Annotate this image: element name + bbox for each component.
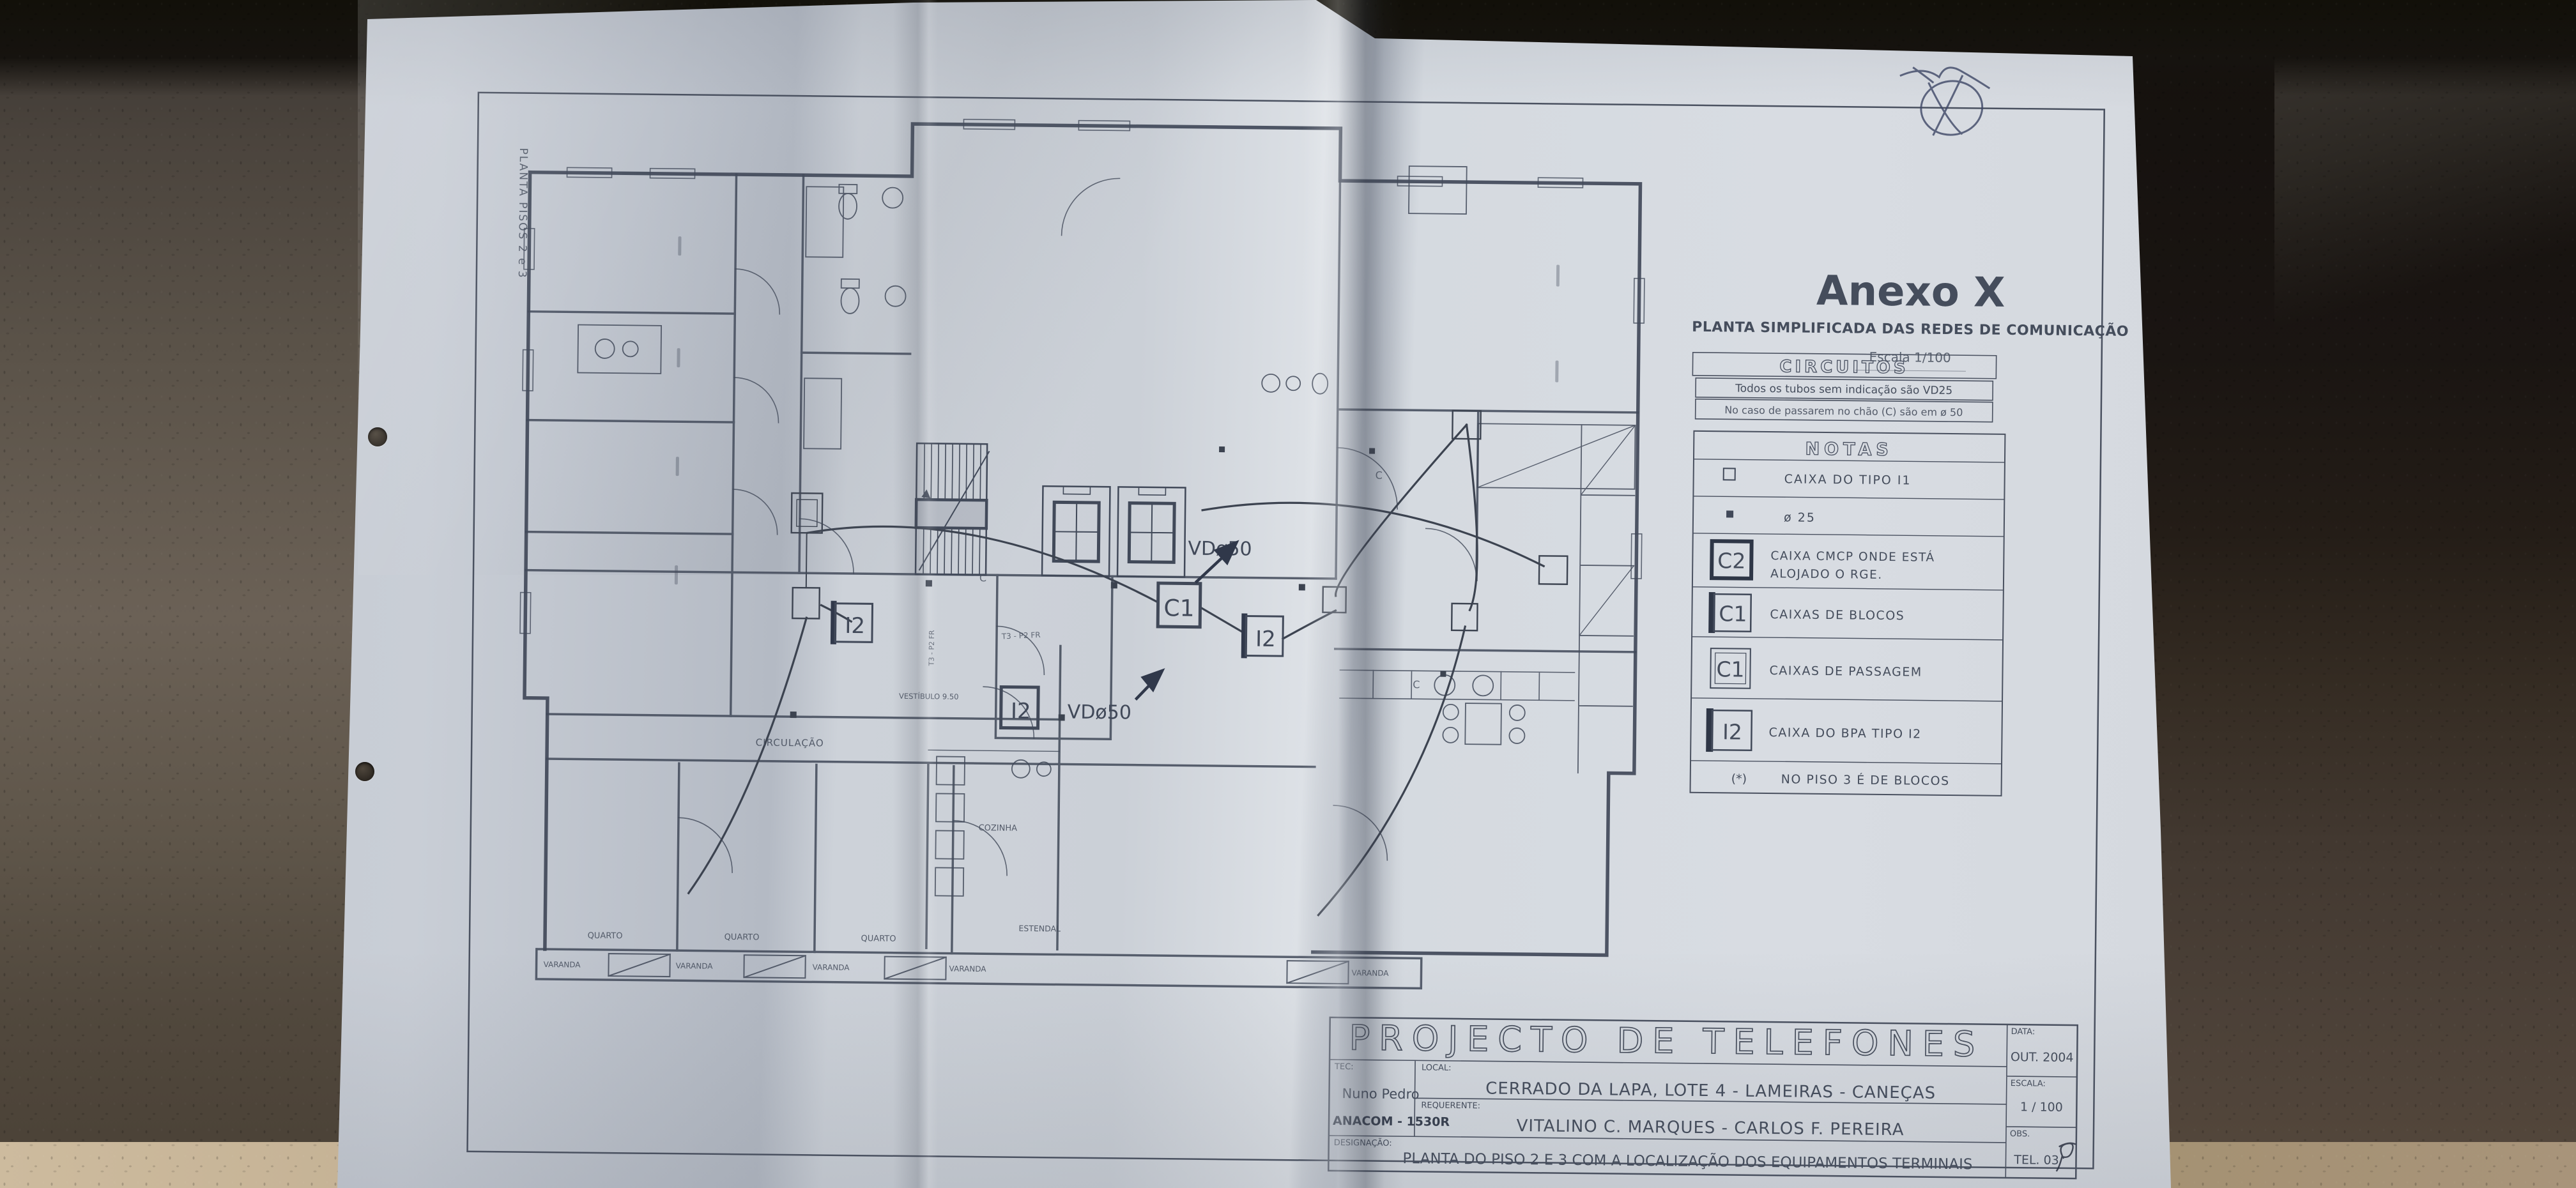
legend-c1a-code: C1 [1719, 601, 1747, 626]
tec-value: Nuno Pedro [1342, 1086, 1419, 1102]
requerente-value: VITALINO C. MARQUES - CARLOS F. PEREIRA [1516, 1116, 1904, 1139]
room-quarto-2: QUARTO [724, 933, 760, 943]
cable-mark-2: C [1413, 678, 1420, 690]
legend-c2-code: C2 [1717, 548, 1745, 573]
title-block: PROJECTO DE TELEFONES TEC: Nuno Pedro AN… [1328, 1017, 2077, 1178]
room-quarto-3: QUARTO [861, 934, 896, 944]
legend-row3-text1: CAIXA CMCP ONDE ESTÁ [1770, 549, 1935, 565]
legend-row4-text: CAIXAS DE BLOCOS [1770, 607, 1905, 623]
legend-footnote-symbol: (*) [1731, 772, 1747, 786]
sheet-subtitle: PLANTA SIMPLIFICADA DAS REDES DE COMUNIC… [1692, 319, 2129, 340]
designacao-value: PLANTA DO PISO 2 E 3 COM A LOCALIZAÇÃO D… [1402, 1149, 1972, 1173]
i2-bottom-label: I2 [1011, 699, 1031, 724]
sheet-title: Anexo X [1816, 268, 2005, 317]
room-labels: CIRCULAÇÃO VESTÍBULO 9.50 COZINHA ESTEND… [544, 687, 1392, 978]
staircase [916, 443, 989, 575]
obs-label: OBS. [2010, 1129, 2030, 1139]
internal-walls [521, 172, 1640, 991]
room-estendal: ESTENDAL [1018, 924, 1061, 934]
legend-symbol-open-square [1724, 468, 1735, 480]
handwritten-signature [1900, 67, 1989, 139]
room-vestibulo: VESTÍBULO 9.50 [899, 691, 959, 701]
legend-footnote-text: NO PISO 3 É DE BLOCOS [1781, 772, 1950, 788]
room-varanda-4: VARANDA [949, 964, 987, 974]
room-varanda-1: VARANDA [544, 960, 581, 970]
tec-stamp: ANACOM - 1530R [1333, 1114, 1450, 1129]
room-circulacao: CIRCULAÇÃO [756, 736, 824, 749]
data-value: OUT. 2004 [2011, 1050, 2074, 1065]
room-varanda-3: VARANDA [813, 963, 850, 972]
legend-row5-text: CAIXAS DE PASSAGEM [1769, 664, 1922, 680]
i2-left-label: I2 [845, 613, 865, 639]
punch-hole-bottom [355, 762, 374, 781]
circuitos-line1: Todos os tubos sem indicação são VD25 [1735, 382, 1952, 397]
cable-runs [689, 416, 1545, 917]
legend-column: Anexo X PLANTA SIMPLIFICADA DAS REDES DE… [1687, 266, 2129, 797]
cable-mark-1: C [1376, 469, 1383, 482]
approval-signature-mark [2057, 1143, 2074, 1171]
c1-box-label: C1 [1163, 595, 1194, 622]
cable-mark-3: C [979, 572, 986, 584]
legend-i2-code: I2 [1722, 719, 1742, 744]
room-quarto-1: QUARTO [588, 931, 623, 941]
duct-labels: VDø50 VDø50 [1068, 537, 1252, 726]
escala-label: ESCALA: [2011, 1079, 2046, 1089]
i2-right-label: I2 [1255, 627, 1276, 652]
photo-of-technical-drawing: PLANTA PISOS 2 e 3 [0, 0, 2576, 1188]
outer-walls [522, 120, 1641, 961]
tec-label: TEC: [1334, 1062, 1354, 1072]
local-label: LOCAL: [1422, 1063, 1452, 1072]
requerente-label: REQUERENTE: [1421, 1100, 1480, 1111]
drawing-frame [468, 93, 2104, 1169]
legend-row2-text: ø 25 [1784, 510, 1816, 525]
legend-row3-text2: ALOJADO O RGE. [1770, 567, 1883, 582]
titleblock-title: PROJECTO DE TELEFONES [1349, 1017, 1984, 1064]
legend-symbol-filled-square [1726, 510, 1733, 517]
elevator-shafts [1042, 486, 1185, 577]
door-arcs [678, 174, 1480, 880]
designacao-label: DESIGNAÇÃO: [1334, 1138, 1392, 1148]
room-varanda-5: VARANDA [1351, 968, 1389, 978]
duct-label-bottom: VDø50 [1068, 701, 1132, 724]
circuitos-line2: No caso de passarem no chão (C) são em ø… [1724, 404, 1963, 418]
micro-label-1: T3 - P2 FR [1001, 630, 1041, 641]
micro-label-2: T3 - P2 FR [928, 630, 937, 666]
floor-plan: C1 I2 I2 I2 VDø50 [516, 115, 1646, 991]
room-cozinha: COZINHA [979, 823, 1018, 834]
legend-row1-text: CAIXA DO TIPO I1 [1784, 472, 1912, 487]
legend-row6-text: CAIXA DO BPA TIPO I2 [1768, 726, 1921, 742]
legend-c1b-code: C1 [1716, 657, 1744, 682]
punch-hole-top [368, 427, 387, 446]
obs-value: TEL. 03 [2013, 1153, 2059, 1168]
room-varanda-2: VARANDA [676, 961, 714, 971]
notas-title: NOTAS [1805, 439, 1893, 460]
escala-value: 1 / 100 [2020, 1100, 2063, 1115]
data-label: DATA: [2011, 1027, 2035, 1037]
component-boxes: C1 I2 I2 I2 [830, 580, 1284, 731]
circuitos-title: CIRCUITOS [1779, 357, 1909, 377]
